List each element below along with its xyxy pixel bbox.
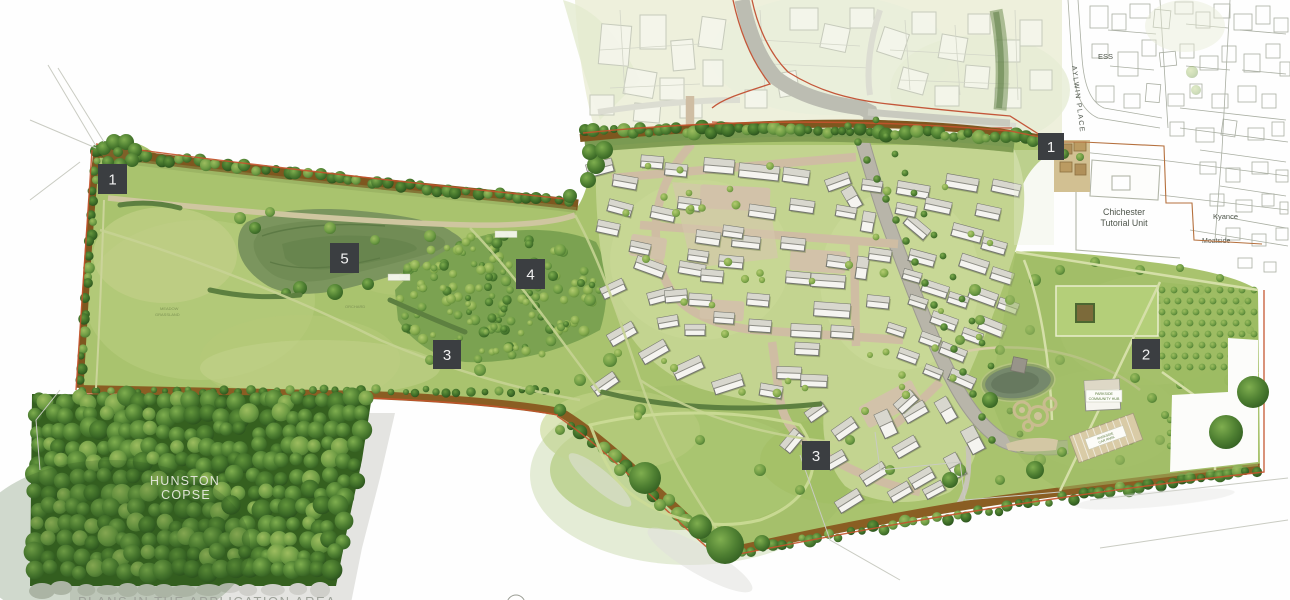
svg-text:1: 1: [108, 172, 116, 189]
svg-text:GRASSLAND: GRASSLAND: [155, 312, 180, 317]
svg-text:3: 3: [812, 448, 820, 465]
svg-text:Tutorial Unit: Tutorial Unit: [1100, 218, 1148, 228]
svg-text:2: 2: [1142, 347, 1150, 364]
svg-text:PLANS IN THE APPLICATION AREA: PLANS IN THE APPLICATION AREA: [78, 594, 336, 600]
svg-text:Chichester: Chichester: [1103, 207, 1145, 217]
svg-text:MEADOW: MEADOW: [160, 306, 179, 311]
svg-text:PARKSIDE: PARKSIDE: [1095, 392, 1114, 396]
svg-text:Kyance: Kyance: [1213, 212, 1238, 221]
svg-text:COPSE: COPSE: [161, 488, 211, 502]
svg-text:HUNSTON: HUNSTON: [150, 474, 220, 488]
svg-text:5: 5: [340, 251, 348, 268]
svg-text:4: 4: [526, 267, 534, 284]
svg-text:ESS: ESS: [1098, 52, 1113, 61]
svg-text:1: 1: [1047, 139, 1055, 156]
svg-text:3: 3: [443, 347, 451, 364]
svg-text:COMMUNITY HUB: COMMUNITY HUB: [1089, 397, 1120, 401]
svg-text:ORCHARD: ORCHARD: [345, 304, 365, 309]
